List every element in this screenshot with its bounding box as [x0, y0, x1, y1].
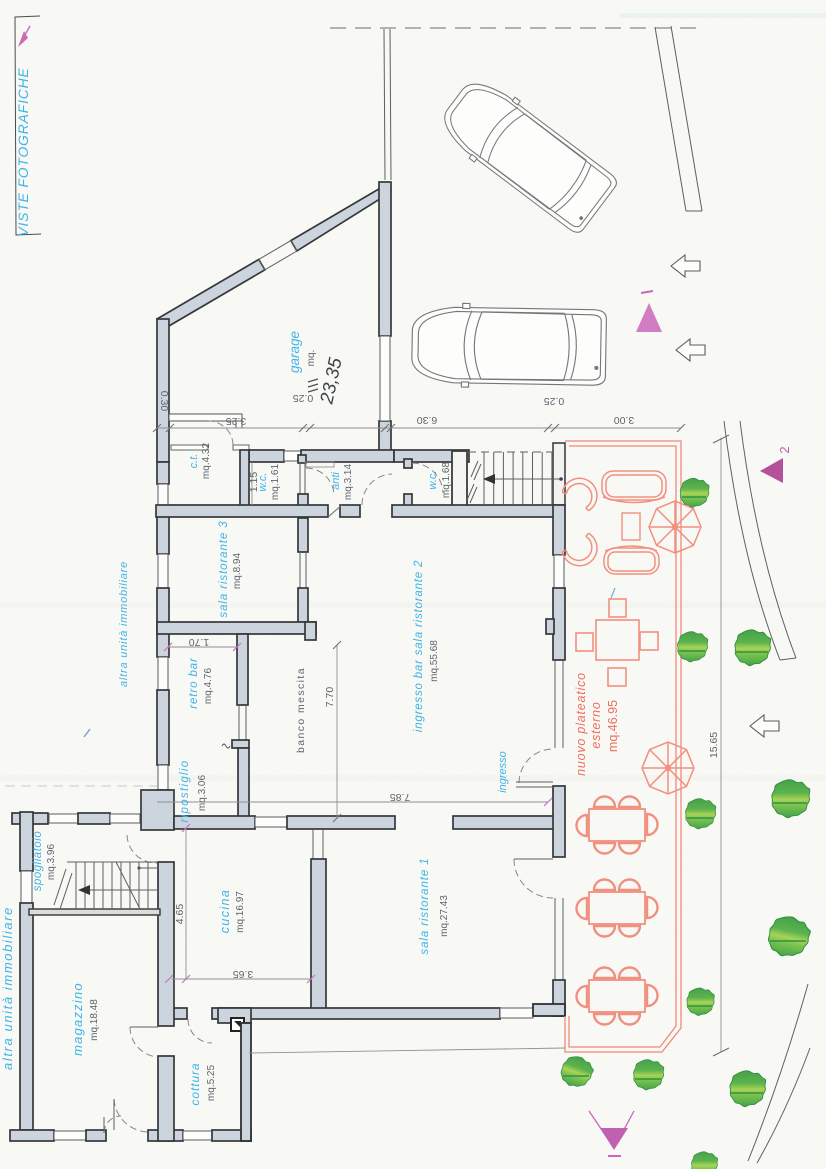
svg-text:ingresso: ingresso — [497, 751, 509, 793]
svg-text:c.t.: c.t. — [188, 454, 200, 469]
svg-text:mq.1.68: mq.1.68 — [441, 461, 452, 498]
svg-text:sala ristorante 1: sala ristorante 1 — [419, 857, 431, 954]
svg-text:0.30: 0.30 — [158, 391, 170, 412]
svg-text:4.65: 4.65 — [174, 904, 186, 925]
svg-text:6.30: 6.30 — [417, 414, 438, 426]
svg-text:mq.3.06: mq.3.06 — [197, 774, 208, 811]
svg-text:nuovo plateatico: nuovo plateatico — [574, 672, 588, 776]
svg-text:mq.3.14: mq.3.14 — [343, 463, 354, 500]
svg-text:3.65: 3.65 — [233, 968, 254, 980]
svg-text:ingresso bar sala ristorante 2: ingresso bar sala ristorante 2 — [413, 560, 425, 732]
svg-text:retro bar: retro bar — [188, 657, 200, 709]
svg-text:VISTE FOTOGRAFICHE: VISTE FOTOGRAFICHE — [16, 67, 31, 236]
svg-text:garage: garage — [287, 331, 302, 373]
svg-text:mq.1.61: mq.1.61 — [270, 463, 281, 500]
svg-text:mq.18.48: mq.18.48 — [89, 999, 100, 1041]
svg-text:anti: anti — [330, 472, 342, 490]
svg-text:altra unità immobiliare: altra unità immobiliare — [0, 906, 15, 1070]
svg-text:magazzino: magazzino — [70, 982, 85, 1056]
svg-text:0.25: 0.25 — [544, 395, 565, 407]
svg-text:spogliatoio: spogliatoio — [32, 831, 44, 892]
svg-text:mq.8.94: mq.8.94 — [232, 552, 243, 589]
svg-text:1.70: 1.70 — [189, 636, 210, 648]
svg-text:mq.55.68: mq.55.68 — [429, 640, 440, 682]
svg-text:mq.4.32: mq.4.32 — [201, 442, 212, 479]
svg-text:mq.4.76: mq.4.76 — [203, 667, 214, 704]
svg-text:banco mescita: banco mescita — [295, 667, 307, 753]
svg-text:ripostiglio: ripostiglio — [179, 760, 191, 823]
svg-text:mq.5.25: mq.5.25 — [206, 1064, 217, 1101]
svg-text:sala ristorante 3: sala ristorante 3 — [218, 520, 230, 617]
svg-text:15.65: 15.65 — [708, 732, 720, 758]
svg-text:cucina: cucina — [218, 889, 232, 934]
svg-text:mq.16.97: mq.16.97 — [235, 891, 246, 933]
svg-text:altra unità immobiliare: altra unità immobiliare — [118, 561, 130, 687]
svg-text:3.00: 3.00 — [614, 414, 635, 426]
svg-text:7.85: 7.85 — [390, 791, 411, 803]
svg-text:7.70: 7.70 — [324, 687, 336, 708]
svg-text:mq.27.43: mq.27.43 — [439, 895, 450, 937]
svg-text:esterno: esterno — [589, 701, 603, 748]
svg-text:mq.: mq. — [306, 350, 317, 367]
svg-text:mq.3.96: mq.3.96 — [46, 843, 57, 880]
svg-text:mq.46.95: mq.46.95 — [606, 700, 620, 752]
svg-text:w.c.: w.c. — [427, 471, 439, 490]
svg-text:3.25: 3.25 — [226, 415, 247, 427]
svg-text:cottura: cottura — [188, 1063, 202, 1106]
svg-text:w.c.: w.c. — [257, 473, 269, 492]
svg-text:2: 2 — [777, 446, 792, 453]
svg-text:0.25: 0.25 — [293, 392, 314, 404]
